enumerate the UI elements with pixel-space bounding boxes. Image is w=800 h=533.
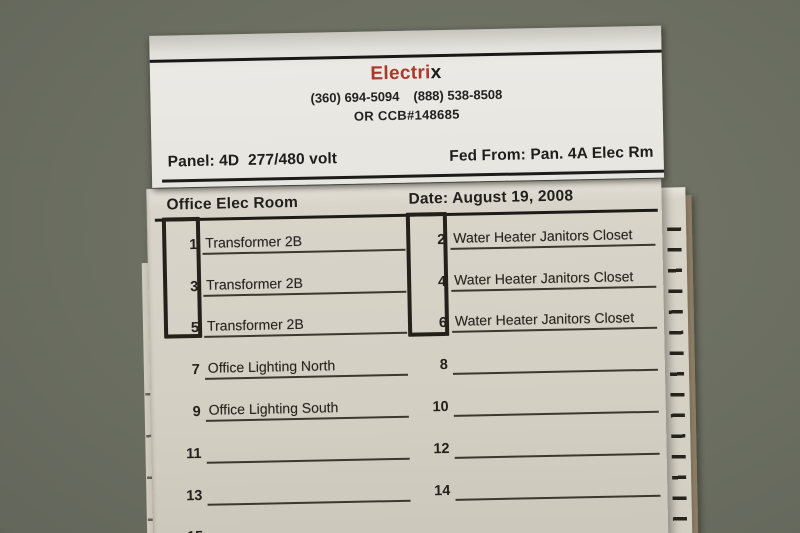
- circuit-line-right: Water Heater Janitors Closet: [450, 244, 656, 292]
- breaker-group-box-right: [406, 212, 449, 337]
- circuit-line-left: [208, 499, 412, 533]
- circuit-line-left: [207, 458, 411, 506]
- panel-schedule-stack: Office Elec Room Date: August 19, 2008 1…: [143, 17, 706, 533]
- circuit-line-left: Office Lighting North: [204, 332, 408, 380]
- company-name-black: x: [430, 62, 441, 83]
- circuit-number-right: 12: [413, 441, 454, 458]
- circuit-label-left: Transformer 2B: [204, 316, 304, 336]
- circuit-number-right: 8: [412, 357, 453, 374]
- circuit-number-right: 10: [413, 399, 454, 416]
- circuit-line-left: Transformer 2B: [202, 207, 406, 255]
- breaker-group-box-left: [162, 217, 202, 339]
- photo-background: Office Elec Room Date: August 19, 2008 1…: [0, 0, 800, 533]
- company-name-red: Electri: [370, 62, 431, 84]
- phone-number-1: (360) 694-5094: [310, 89, 399, 106]
- circuit-number-right: 14: [414, 482, 455, 499]
- circuit-line-right: [456, 494, 662, 533]
- circuit-line-right: Water Heater Janitors Closet: [450, 202, 656, 250]
- circuit-line-left: Transformer 2B: [203, 290, 407, 338]
- circuit-number-left: 13: [166, 487, 207, 504]
- phone-number-2: (888) 538-8508: [413, 87, 502, 104]
- circuit-line-right: [452, 327, 658, 375]
- circuit-line-left: Transformer 2B: [203, 249, 407, 297]
- circuit-number-left: 7: [164, 362, 205, 379]
- circuit-number-left: 11: [165, 446, 206, 463]
- circuit-schedule-sheet: Office Elec Room Date: August 19, 2008 1…: [146, 179, 669, 533]
- circuit-line-right: [455, 452, 661, 500]
- circuit-line-left: Office Lighting South: [205, 374, 409, 422]
- circuit-label-left: Transformer 2B: [203, 274, 303, 294]
- circuit-label-left: Transformer 2B: [202, 233, 302, 253]
- circuit-line-right: Water Heater Janitors Closet: [451, 285, 657, 333]
- circuit-line-left: [206, 416, 410, 464]
- circuit-number-left: 15: [167, 529, 208, 533]
- circuit-number-left: 9: [165, 404, 206, 421]
- panel-info-row: Panel: 4D 277/480 volt Fed From: Pan. 4A…: [168, 144, 654, 172]
- contractor-card: Electrix (360) 694-5094 (888) 538-8508 O…: [149, 26, 664, 188]
- circuit-line-right: [454, 411, 660, 459]
- under-sheet-line-ends: [667, 227, 688, 533]
- panel-id-label: Panel: 4D 277/480 volt: [168, 150, 338, 171]
- circuit-line-right: [453, 369, 659, 417]
- fed-from-label: Fed From: Pan. 4A Elec Rm: [449, 144, 654, 166]
